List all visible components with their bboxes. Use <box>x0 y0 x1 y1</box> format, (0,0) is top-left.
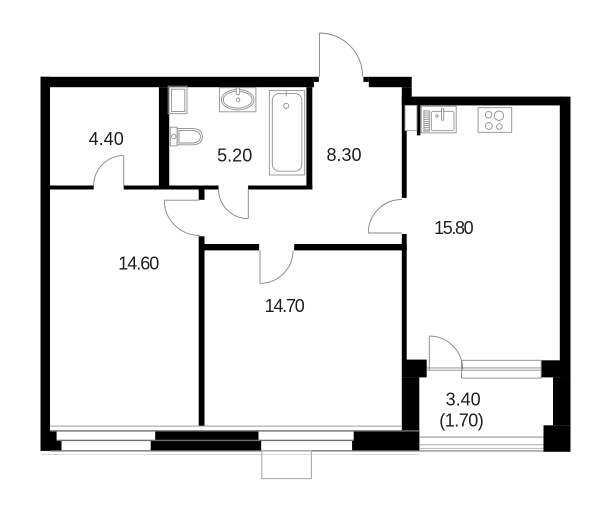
svg-text:3.40: 3.40 <box>446 390 481 410</box>
svg-text:(1.70): (1.70) <box>439 411 483 431</box>
svg-text:15.80: 15.80 <box>434 218 473 238</box>
svg-text:14.60: 14.60 <box>118 254 159 274</box>
svg-text:5.20: 5.20 <box>217 146 252 166</box>
svg-text:8.30: 8.30 <box>326 145 361 165</box>
svg-text:4.40: 4.40 <box>89 129 124 149</box>
svg-text:14.70: 14.70 <box>265 296 305 316</box>
